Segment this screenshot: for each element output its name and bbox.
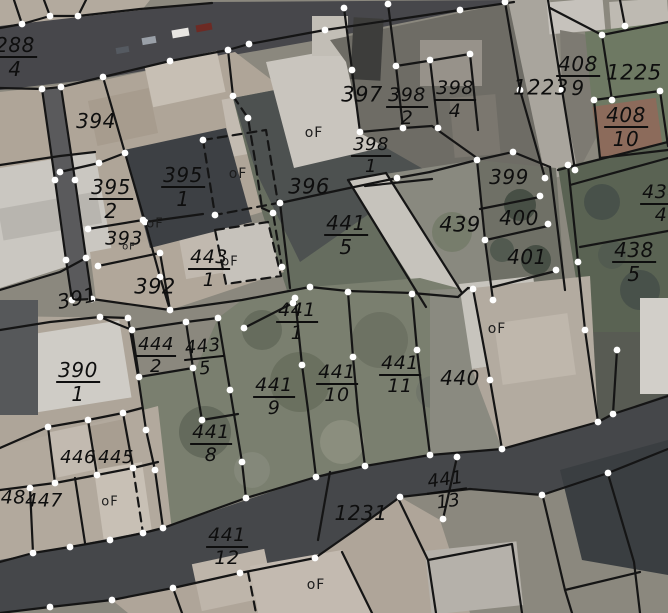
terrain-patch [0, 300, 38, 415]
vertex-dot [582, 327, 589, 334]
terrain-patch [504, 189, 536, 221]
vertex-dot [454, 454, 461, 461]
terrain-patch [179, 406, 231, 458]
terrain-patch [521, 245, 551, 275]
vertex-dot [167, 58, 174, 65]
vertex-dot [400, 125, 407, 132]
vertex-dot [183, 319, 190, 326]
vertex-dot [510, 149, 517, 156]
vertex-dot [67, 544, 74, 551]
terrain-patch [432, 212, 472, 252]
vertex-dot [200, 137, 207, 144]
parcel-boundary-line [132, 322, 193, 377]
vertex-dot [595, 419, 602, 426]
cadastral-map-canvas[interactable]: 2884394395239513933923913901396397398239… [0, 0, 668, 613]
vertex-dot [572, 167, 579, 174]
vertex-dot [622, 23, 629, 30]
vertex-dot [499, 446, 506, 453]
vertex-dot [575, 259, 582, 266]
vertex-dot [279, 264, 286, 271]
vertex-dot [89, 296, 96, 303]
vertex-dot [190, 365, 197, 372]
vertex-dot [440, 516, 447, 523]
vertex-dot [482, 237, 489, 244]
vertex-dot [409, 291, 416, 298]
vertex-dot [122, 150, 129, 157]
vertex-dot [30, 550, 37, 557]
vertex-dot [537, 193, 544, 200]
vertex-dot [52, 177, 59, 184]
vertex-dot [307, 284, 314, 291]
vertex-dot [591, 97, 598, 104]
vertex-dot [100, 74, 107, 81]
vertex-dot [136, 374, 143, 381]
map-drawing [0, 0, 668, 613]
terrain-patch [547, 0, 606, 34]
terrain-patch [234, 452, 270, 488]
vertex-dot [345, 289, 352, 296]
vertex-dot [58, 84, 65, 91]
vertex-dot [427, 57, 434, 64]
vertex-dot [490, 297, 497, 304]
vertex-dot [362, 463, 369, 470]
vertex-dot [170, 585, 177, 592]
vertex-dot [47, 13, 54, 20]
terrain-patch [490, 238, 514, 262]
vertex-dot [397, 494, 404, 501]
vertex-dot [95, 263, 102, 270]
vertex-dot [385, 1, 392, 8]
vertex-dot [599, 32, 606, 39]
vertex-dot [435, 125, 442, 132]
vertex-dot [152, 467, 159, 474]
vertex-dot [83, 255, 90, 262]
vertex-dot [237, 570, 244, 577]
vertex-dot [69, 297, 76, 304]
terrain-patch [584, 184, 620, 220]
vertex-dot [230, 93, 237, 100]
vertex-dot [657, 88, 664, 95]
vertex-dot [143, 427, 150, 434]
vertex-dot [215, 315, 222, 322]
vertex-dot [199, 417, 206, 424]
vertex-dot [167, 307, 174, 314]
vertex-dot [19, 21, 26, 28]
terrain-patch [350, 17, 383, 80]
vertex-dot [245, 115, 252, 122]
vertex-dot [243, 495, 250, 502]
vertex-dot [27, 485, 34, 492]
vertex-dot [52, 480, 59, 487]
vertex-dot [605, 470, 612, 477]
vertex-dot [565, 162, 572, 169]
vertex-dot [322, 27, 329, 34]
vertex-dot [45, 424, 52, 431]
vertex-dot [160, 525, 167, 532]
vertex-dot [109, 597, 116, 604]
vertex-dot [130, 465, 137, 472]
orthophoto-terrain-layer [0, 0, 668, 613]
terrain-patch [352, 312, 408, 368]
vertex-dot [72, 177, 79, 184]
vertex-dot [75, 13, 82, 20]
vertex-dot [427, 452, 434, 459]
vertex-dot [85, 226, 92, 233]
parcel-boundary-line [543, 497, 572, 613]
vertex-dot [470, 286, 477, 293]
vertex-dot [394, 175, 401, 182]
vertex-dot [341, 5, 348, 12]
terrain-patch [494, 313, 576, 385]
vertex-dot [140, 530, 147, 537]
vertex-dot [292, 295, 299, 302]
vertex-dot [39, 86, 46, 93]
terrain-patch [598, 241, 626, 269]
vertex-dot [47, 604, 54, 611]
vertex-dot [609, 97, 616, 104]
vertex-dot [97, 314, 104, 321]
vertex-dot [539, 492, 546, 499]
vertex-dot [313, 474, 320, 481]
vertex-dot [225, 47, 232, 54]
vertex-dot [474, 157, 481, 164]
vertex-dot [559, 87, 566, 94]
vertex-dot [246, 41, 253, 48]
vertex-dot [142, 219, 149, 226]
vertex-dot [96, 160, 103, 167]
vertex-dot [157, 250, 164, 257]
vertex-dot [125, 315, 132, 322]
vertex-dot [610, 411, 617, 418]
vertex-dot [312, 555, 319, 562]
terrain-patch [640, 298, 668, 394]
terrain-patch [270, 352, 330, 412]
vertex-dot [457, 7, 464, 14]
vertex-dot [614, 347, 621, 354]
vertex-dot [277, 200, 284, 207]
vertex-dot [270, 210, 277, 217]
vertex-dot [129, 327, 136, 334]
vertex-dot [299, 362, 306, 369]
vertex-dot [350, 354, 357, 361]
parcel-boundary-line [565, 572, 640, 590]
parcel-boundary-line [186, 318, 218, 322]
vertex-dot [63, 257, 70, 264]
vertex-dot [487, 377, 494, 384]
vertex-dot [467, 51, 474, 58]
vertex-dot [241, 325, 248, 332]
vertex-dot [414, 347, 421, 354]
vertex-dot [545, 221, 552, 228]
vertex-dot [85, 417, 92, 424]
vertex-dot [239, 459, 246, 466]
vertex-dot [553, 267, 560, 274]
terrain-patch [242, 310, 282, 350]
vertex-dot [157, 274, 164, 281]
vertex-dot [107, 537, 114, 544]
vertex-dot [212, 212, 219, 219]
vertex-dot [227, 387, 234, 394]
vertex-dot [393, 63, 400, 70]
vertex-dot [57, 169, 64, 176]
vertex-dot [349, 67, 356, 74]
vertex-dot [542, 175, 549, 182]
vertex-dot [120, 410, 127, 417]
vertex-dot [357, 129, 364, 136]
terrain-patch [320, 420, 364, 464]
vertex-dot [517, 87, 524, 94]
vertex-dot [94, 472, 101, 479]
